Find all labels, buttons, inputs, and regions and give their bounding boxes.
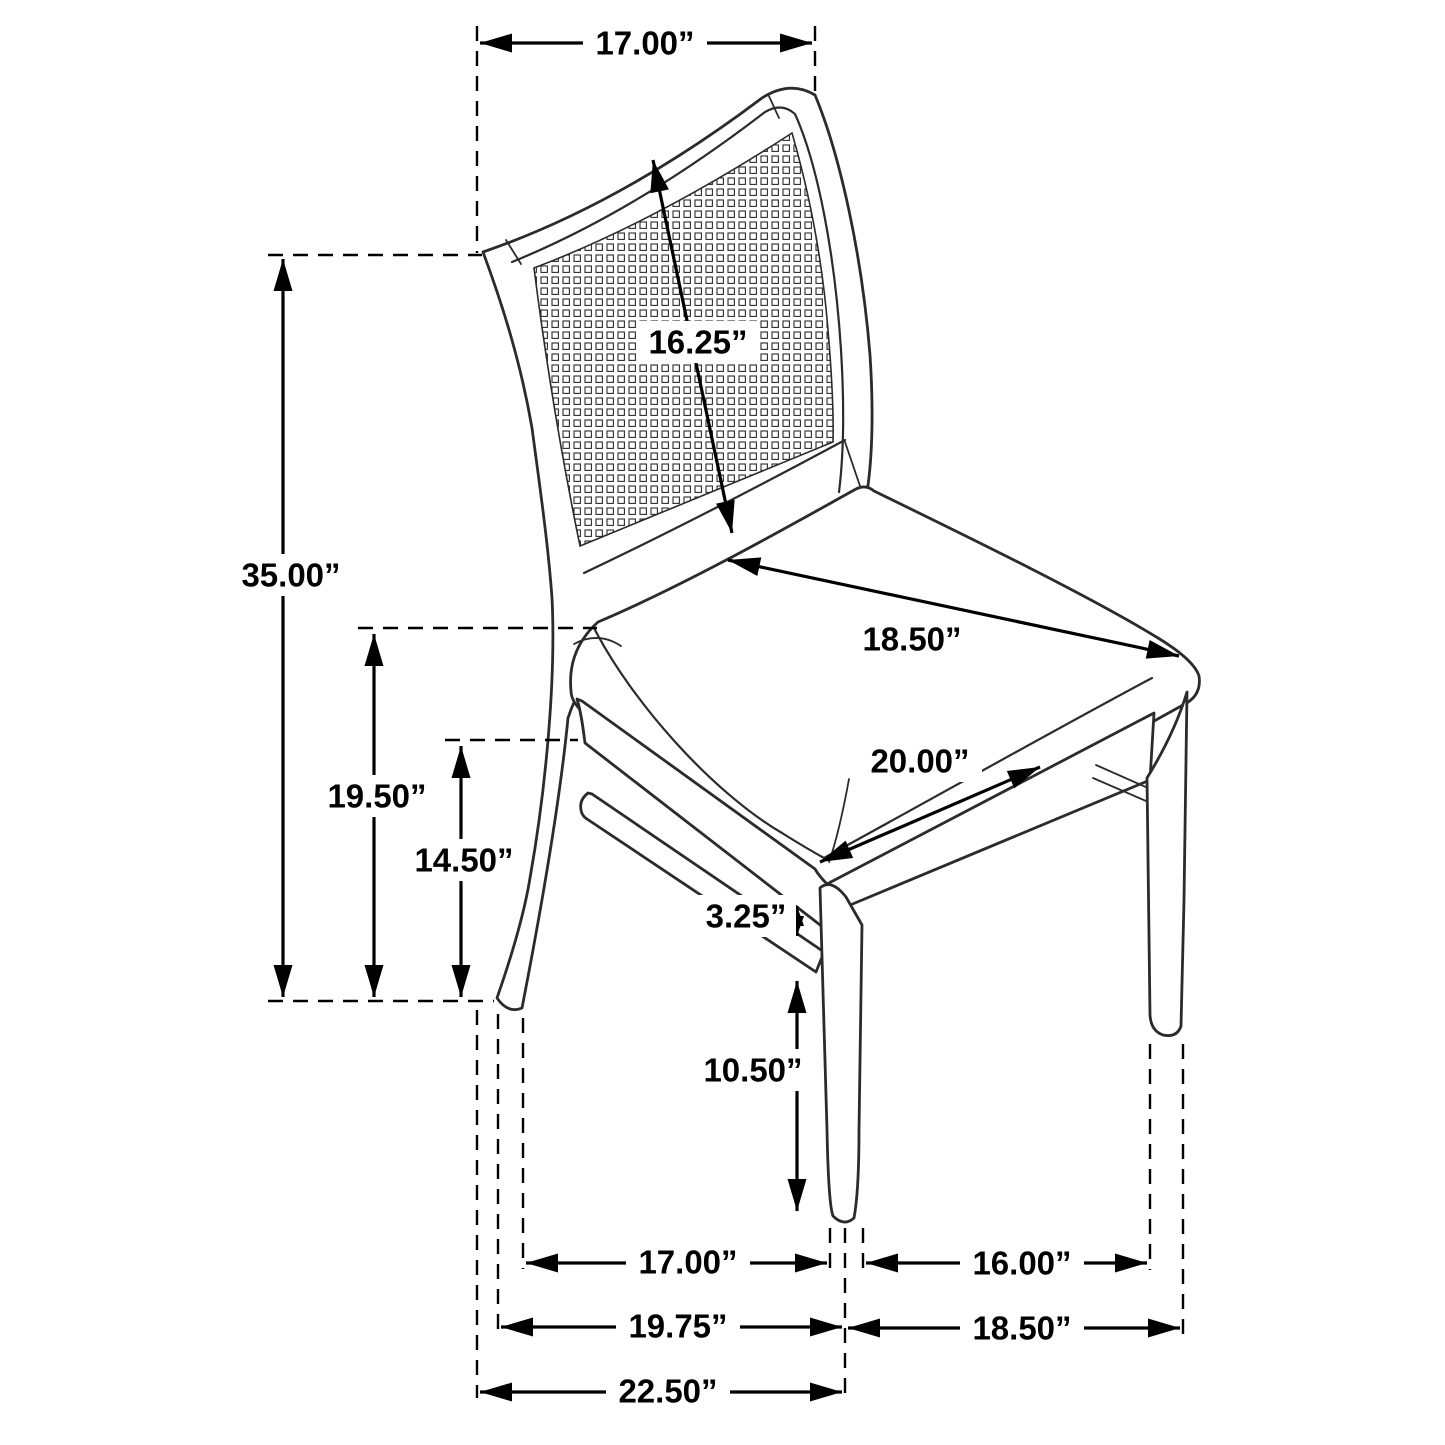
dimension-footprint-depth-front: 19.75” (501, 1305, 842, 1347)
front-left-leg (820, 885, 862, 1222)
dimension-apron-stretcher-gap: 3.25” (696, 895, 797, 937)
dimension-label: 19.75” (628, 1308, 727, 1345)
dimension-leg-span-front: 16.00” (866, 1242, 1147, 1284)
dimension-label: 16.00” (972, 1245, 1071, 1282)
dimension-label: 18.50” (972, 1310, 1071, 1347)
dimension-label: 20.00” (870, 743, 969, 780)
dimension-leg-span-side: 17.00” (526, 1241, 827, 1283)
dimension-label: 3.25” (706, 898, 787, 935)
dimension-overall-height: 35.00” (229, 259, 353, 997)
dimension-label: 10.50” (703, 1052, 802, 1089)
dimension-seat-height: 19.50” (315, 634, 439, 997)
dimension-label: 16.25” (648, 324, 747, 361)
dimension-label: 18.50” (862, 621, 961, 658)
dimension-front-leg-height: 10.50” (691, 981, 815, 1211)
dimension-footprint-width: 18.50” (848, 1307, 1180, 1349)
diagram-canvas: 17.00” 16.25” 35.00” 19.50” 14.50” 18.50… (0, 0, 1445, 1445)
dimension-label: 17.00” (595, 25, 694, 62)
chair-dimension-diagram: 17.00” 16.25” 35.00” 19.50” 14.50” 18.50… (0, 0, 1445, 1445)
chair-drawing (483, 88, 1199, 1222)
dimension-label: 14.50” (414, 842, 513, 879)
dimension-back-top-width: 17.00” (480, 22, 812, 64)
dimension-label: 22.50” (618, 1373, 717, 1410)
dimension-label: 35.00” (241, 557, 340, 594)
dimension-label: 19.50” (327, 778, 426, 815)
dimension-label: 17.00” (638, 1244, 737, 1281)
dimension-overall-depth: 22.50” (480, 1370, 842, 1412)
